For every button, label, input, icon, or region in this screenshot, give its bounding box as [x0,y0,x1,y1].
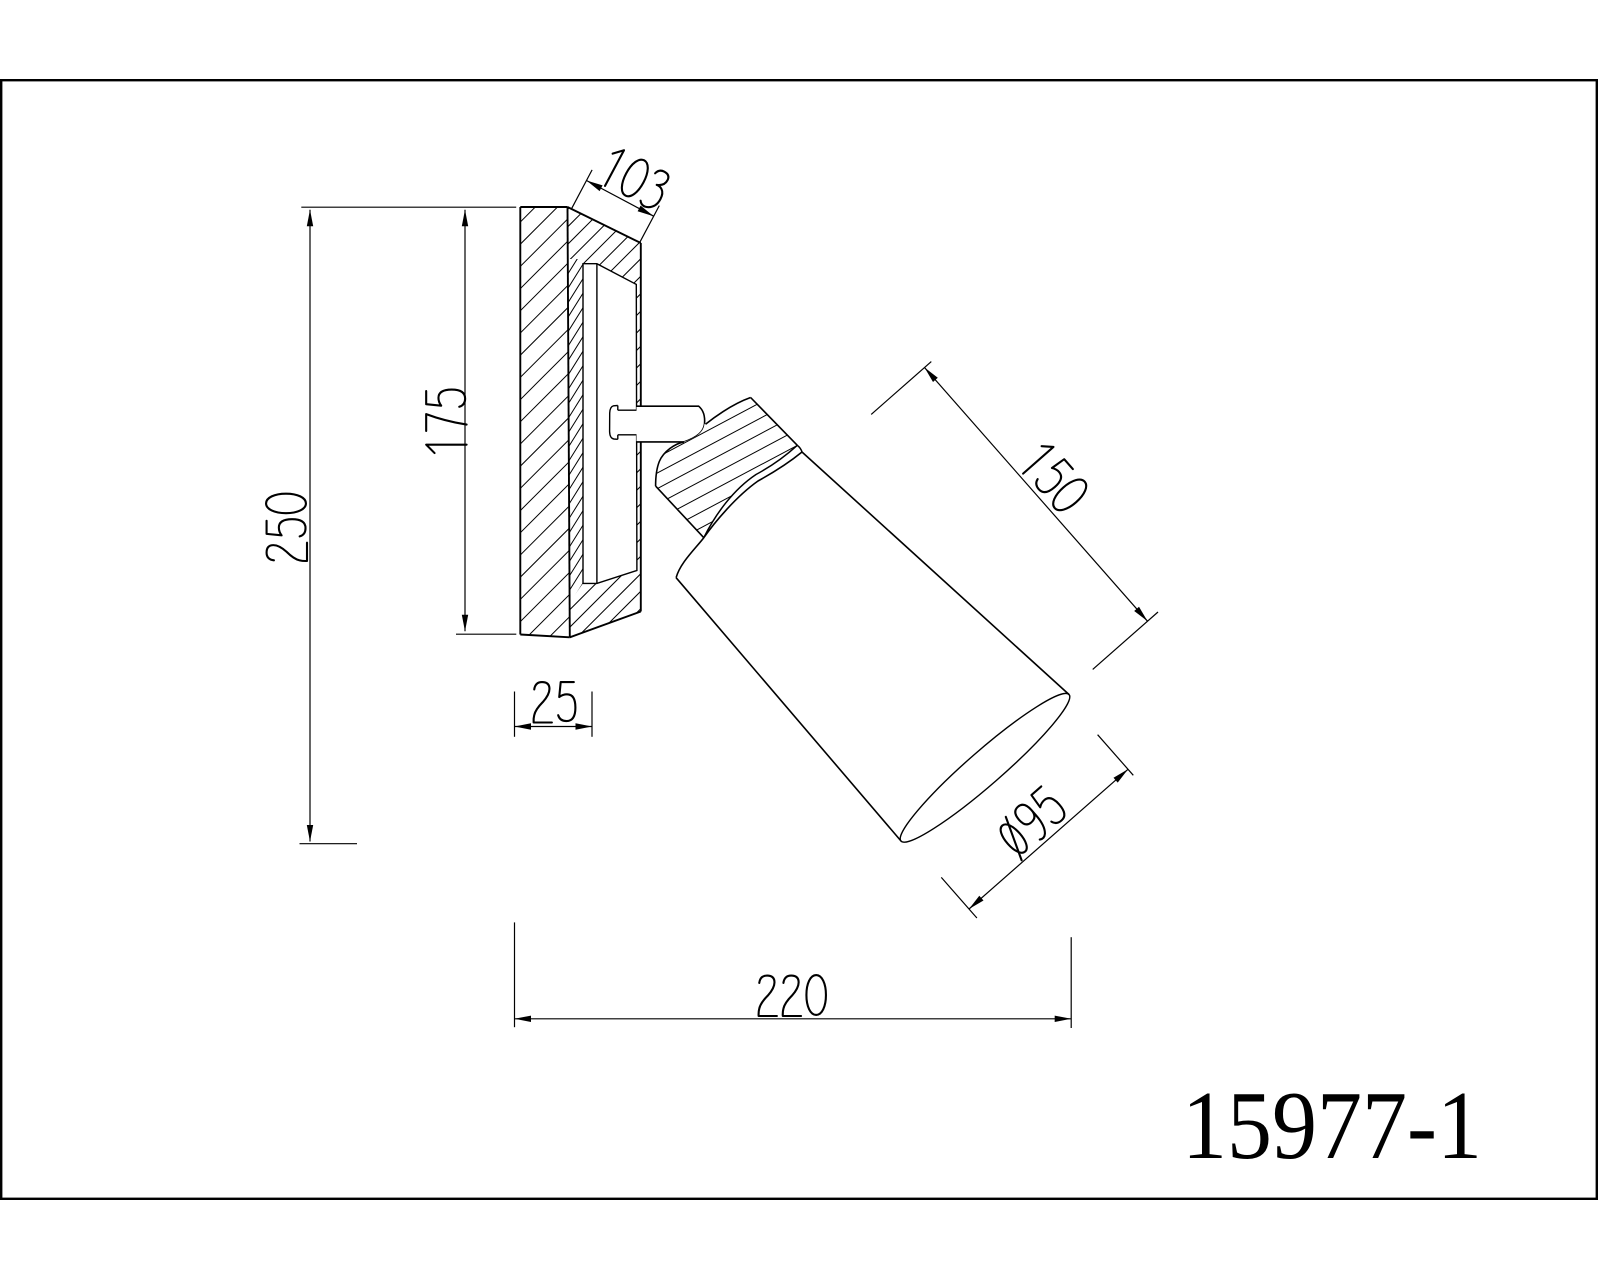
svg-text:15977-1: 15977-1 [1182,1072,1482,1180]
